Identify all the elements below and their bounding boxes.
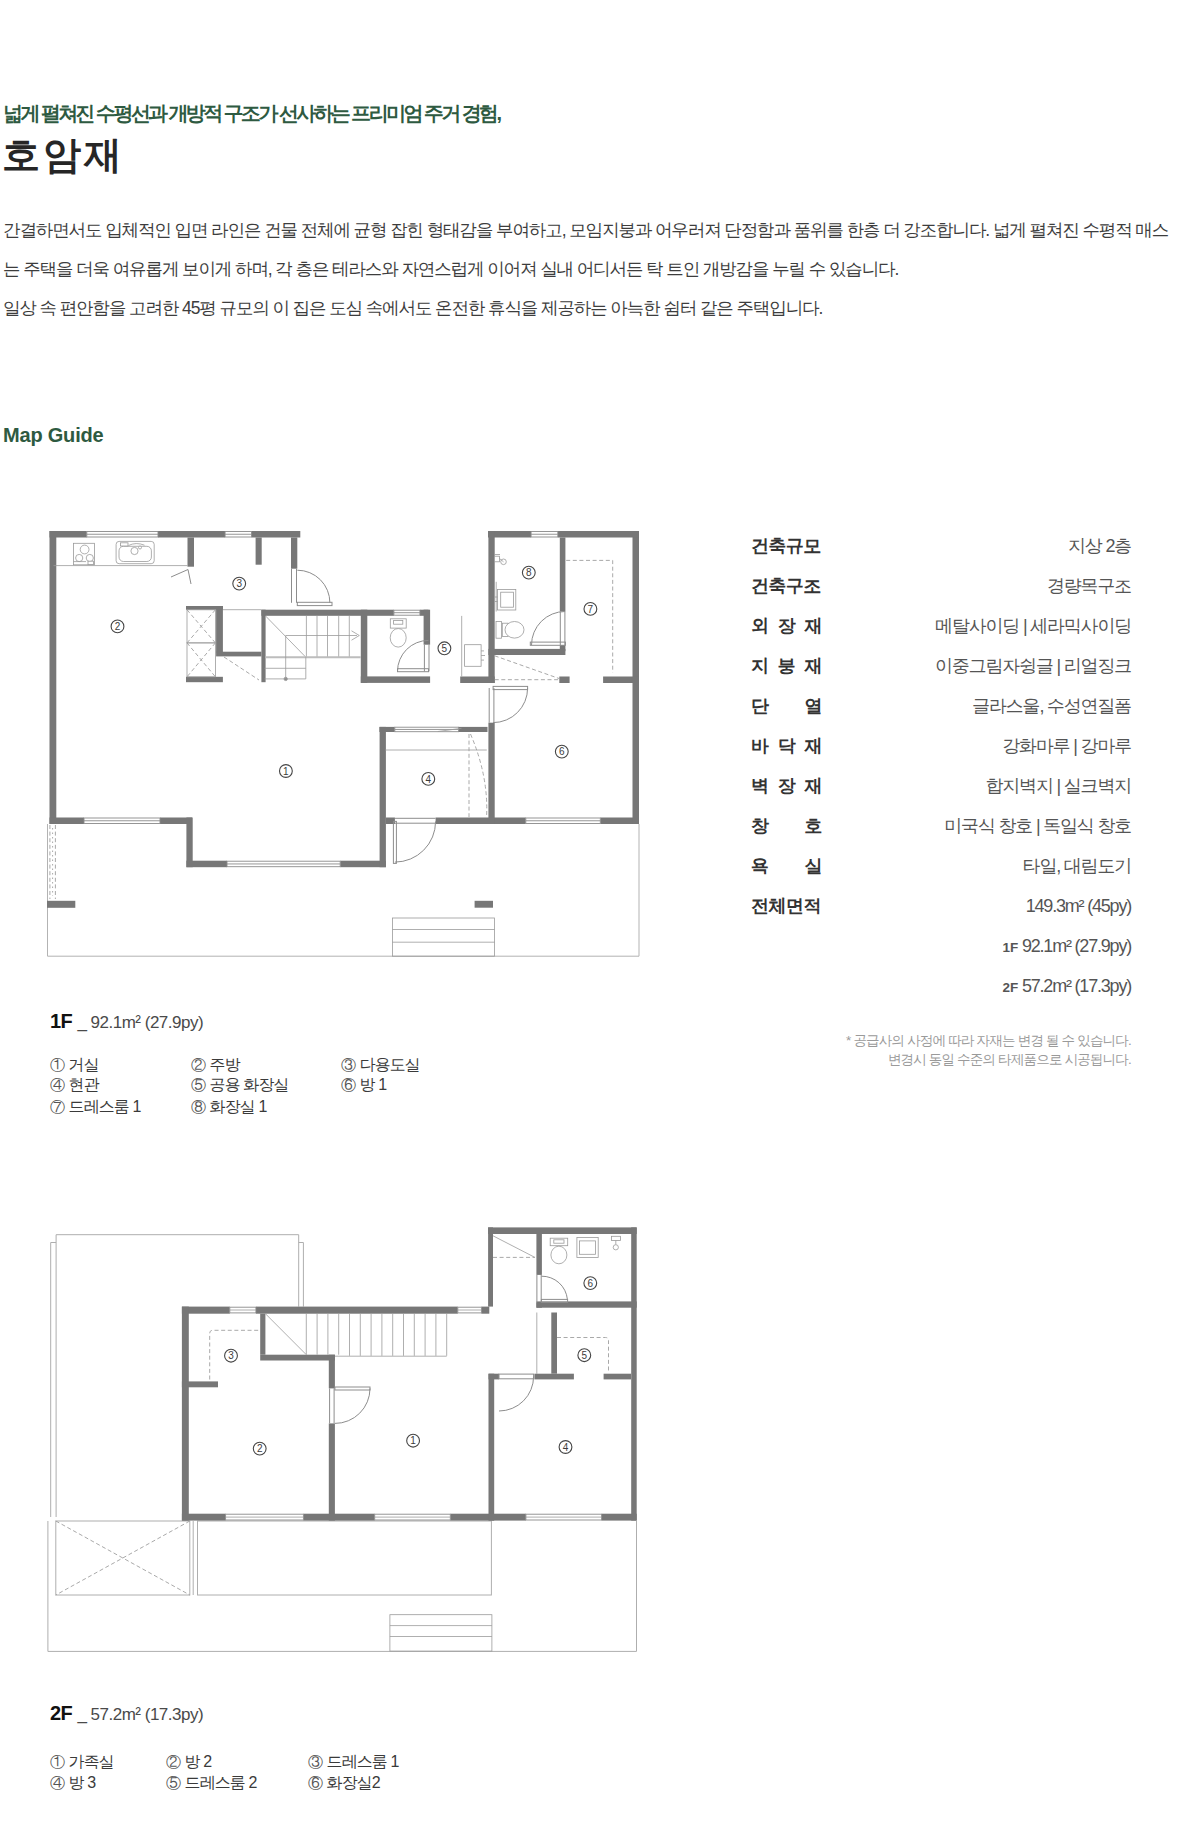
svg-text:5: 5 — [442, 643, 448, 654]
svg-text:8: 8 — [526, 567, 532, 578]
svg-text:4: 4 — [426, 774, 432, 785]
svg-text:2: 2 — [115, 621, 121, 632]
svg-text:4: 4 — [563, 1442, 569, 1453]
svg-text:6: 6 — [559, 746, 565, 757]
svg-text:2: 2 — [257, 1443, 263, 1454]
svg-text:1: 1 — [410, 1435, 416, 1446]
svg-text:3: 3 — [228, 1350, 234, 1361]
svg-text:6: 6 — [588, 1278, 594, 1289]
svg-text:1: 1 — [283, 766, 289, 777]
svg-text:5: 5 — [582, 1350, 588, 1361]
svg-text:7: 7 — [588, 604, 594, 615]
svg-text:3: 3 — [236, 578, 242, 589]
